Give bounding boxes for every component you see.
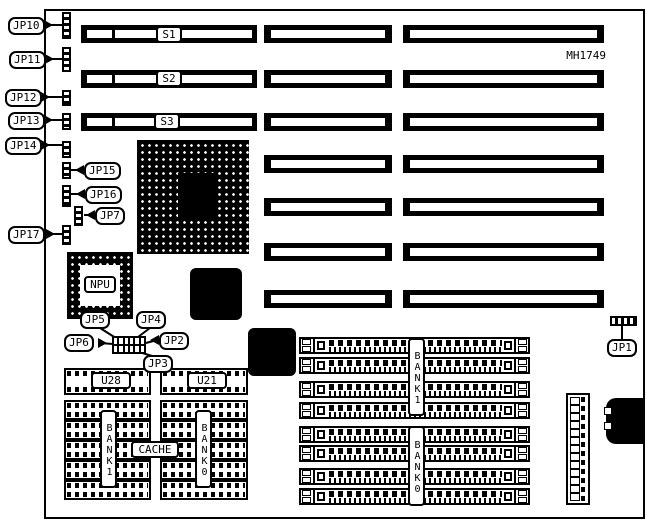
arrow-icon — [45, 54, 54, 64]
callout-jp17: JP17 — [8, 226, 45, 244]
callout-jp5: JP5 — [80, 311, 110, 329]
callout-jp14: JP14 — [5, 137, 42, 155]
dip-bank1-label: BANK1 — [100, 410, 117, 488]
arrow-icon — [76, 189, 85, 199]
slot-label-s1: S1 — [156, 26, 182, 43]
arrow-icon — [44, 115, 53, 125]
arrow-icon — [41, 92, 50, 102]
leader-lines — [0, 0, 649, 527]
slot-label-s2: S2 — [156, 70, 182, 87]
cache-label: CACHE — [131, 441, 179, 458]
callout-jp12: JP12 — [5, 89, 42, 107]
callout-jp4: JP4 — [136, 311, 166, 329]
callout-jp2: JP2 — [159, 332, 189, 350]
callout-jp11: JP11 — [9, 51, 46, 69]
callout-jp15: JP15 — [84, 162, 121, 180]
arrow-icon — [44, 20, 53, 30]
npu-label: NPU — [84, 276, 116, 293]
jumper-cluster — [112, 336, 146, 354]
u21-label: U21 — [187, 372, 227, 389]
arrow-icon — [98, 338, 107, 348]
arrow-icon — [46, 229, 55, 239]
arrow-icon — [41, 140, 50, 150]
arrow-icon — [75, 165, 84, 175]
callout-jp10: JP10 — [8, 17, 45, 35]
callout-jp16: JP16 — [85, 186, 122, 204]
dip-bank0-label: BANK0 — [195, 410, 212, 488]
slot-label-s3: S3 — [154, 113, 180, 130]
callout-jp1: JP1 — [607, 339, 637, 357]
callout-jp3: JP3 — [143, 355, 173, 373]
u28-label: U28 — [91, 372, 131, 389]
callout-jp7: JP7 — [95, 207, 125, 225]
arrow-icon — [150, 335, 159, 345]
arrow-icon — [86, 210, 95, 220]
callout-jp6: JP6 — [64, 334, 94, 352]
callout-jp13: JP13 — [8, 112, 45, 130]
motherboard-diagram: MH1749 S1 S2 S3 JP10 JP11 JP12 JP13 JP14… — [0, 0, 649, 527]
simm-bank1-label: BANK1 — [408, 338, 425, 416]
simm-bank0-label: BANK0 — [408, 426, 425, 506]
